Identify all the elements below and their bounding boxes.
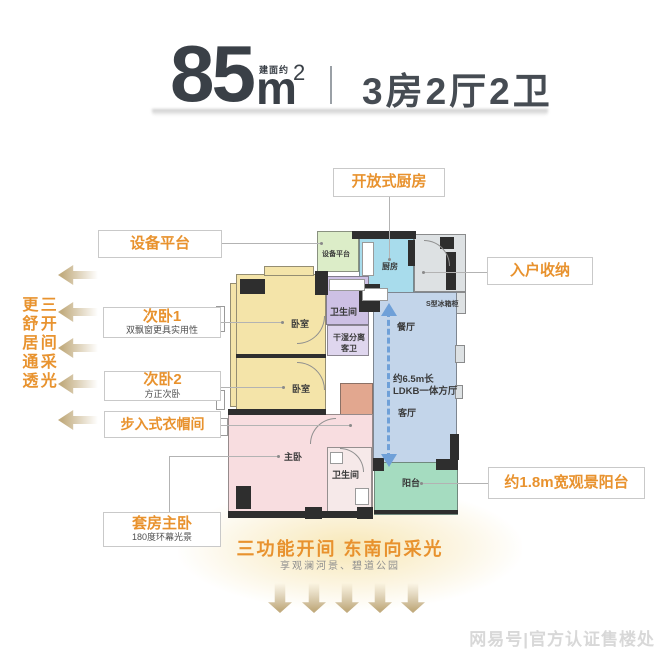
label-bedroom2: 卧室 [292,382,310,395]
callout-subtitle: 双飘窗更具实用性 [126,325,198,336]
callout-connector [424,272,487,273]
bay-window-left [230,283,237,407]
connector-dot [281,321,284,324]
wall-segment [374,510,458,514]
label-master: 主卧 [284,450,302,463]
callout-walkin-closet: 步入式衣帽间 [104,411,221,438]
connector-dot [420,482,423,485]
callout-open-kitchen: 开放式厨房 [333,168,445,197]
label-master-bath: 卫生间 [332,468,359,481]
wall-segment [228,409,326,415]
callout-entry-storage: 入户收纳 [487,257,593,285]
label-equipment-platform: 设备平台 [322,249,350,259]
callout-title: 次卧1 [143,309,181,326]
layout-text: 3房2厅2卫 [362,61,553,115]
label-bathroom: 卫生间 [330,305,357,318]
left-tagline: 三开间采光更舒居通透 [18,296,55,400]
connector-dot [277,455,280,458]
area-superscript: 2 [293,60,305,86]
callout-connector [389,197,390,258]
left-arrow-icon [58,374,98,394]
label-hall-type: LDKB一体方厅 [393,383,457,397]
floorplan-poster: 85 建面约 m 2 3房2厅2卫 三开间采光更舒居通透 [0,0,660,659]
left-arrow-icon [58,302,98,322]
bottom-note: 享观澜河景、碧道公园 [20,557,660,572]
watermark: 网易号|官方认证售楼处 [469,625,655,650]
left-arrow-icon [58,410,98,430]
label-dining: 餐厅 [397,320,415,333]
callout-connector [222,243,322,244]
callout-title: 套房主卧 [132,516,192,533]
callout-connector [221,425,349,426]
wall-segment [240,279,265,294]
left-tagline-line1: 三开间采光 [38,296,55,391]
callout-equipment-platform: 设备平台 [98,230,222,258]
wall-segment [236,354,326,358]
callout-title: 步入式衣帽间 [121,417,205,432]
label-kitchen: 厨房 [382,261,398,272]
left-arrow-icon [58,265,98,285]
arrow-head-up-icon [381,303,397,316]
right-edge-notch [455,345,465,363]
label-living: 客厅 [398,406,416,419]
callout-connector [221,322,281,323]
bay-window-top [264,266,314,276]
bathtub [329,279,365,291]
callout-subtitle: 方正次卧 [144,389,180,400]
callout-connector [169,456,277,457]
wall-segment [436,459,458,470]
connector-dot [388,258,391,261]
wall-segment [450,434,459,460]
callout-title: 入户收纳 [510,263,570,280]
length-arrow [381,303,397,467]
kitchen-counter [362,288,388,301]
callout-title: 设备平台 [130,236,190,253]
callout-bedroom1: 次卧1 双飘窗更具实用性 [103,307,221,338]
connector-dot [349,424,352,427]
connector-dot [422,271,425,274]
wall-segment [408,240,415,266]
connector-dot [282,386,285,389]
wall-segment [352,231,416,239]
length-arrow-line [387,311,390,459]
left-arrow-icon [58,338,98,358]
area-value: 85 [170,34,253,114]
wall-segment [305,507,322,519]
wall-segment [315,271,328,295]
label-guest-bath-2: 客卫 [341,343,357,354]
callout-connector [423,483,488,484]
header-divider [330,66,332,104]
area-unit: m [256,65,297,111]
toilet [355,488,369,505]
wall-segment [228,511,373,518]
callout-title: 次卧2 [143,372,181,389]
header-shadow [152,109,548,116]
callout-connector [221,387,282,388]
callout-title: 开放式厨房 [351,174,426,191]
arrow-head-down-icon [381,454,397,467]
left-tagline-line2: 更舒居通透 [19,296,36,391]
label-bedroom1: 卧室 [291,317,309,330]
label-guest-bath-1: 干湿分离 [333,332,365,343]
wall-segment [357,507,373,519]
label-fridge-cabinet: S型冰箱柜 [426,299,459,309]
callout-title: 约1.8m宽观景阳台 [504,475,628,492]
callout-view-balcony: 约1.8m宽观景阳台 [488,467,645,499]
wall-segment [236,486,251,509]
callout-connector [169,456,170,513]
connector-dot [320,242,323,245]
label-balcony: 阳台 [402,476,420,489]
kitchen-counter [362,242,374,276]
callout-bedroom2: 次卧2 方正次卧 [104,371,221,401]
